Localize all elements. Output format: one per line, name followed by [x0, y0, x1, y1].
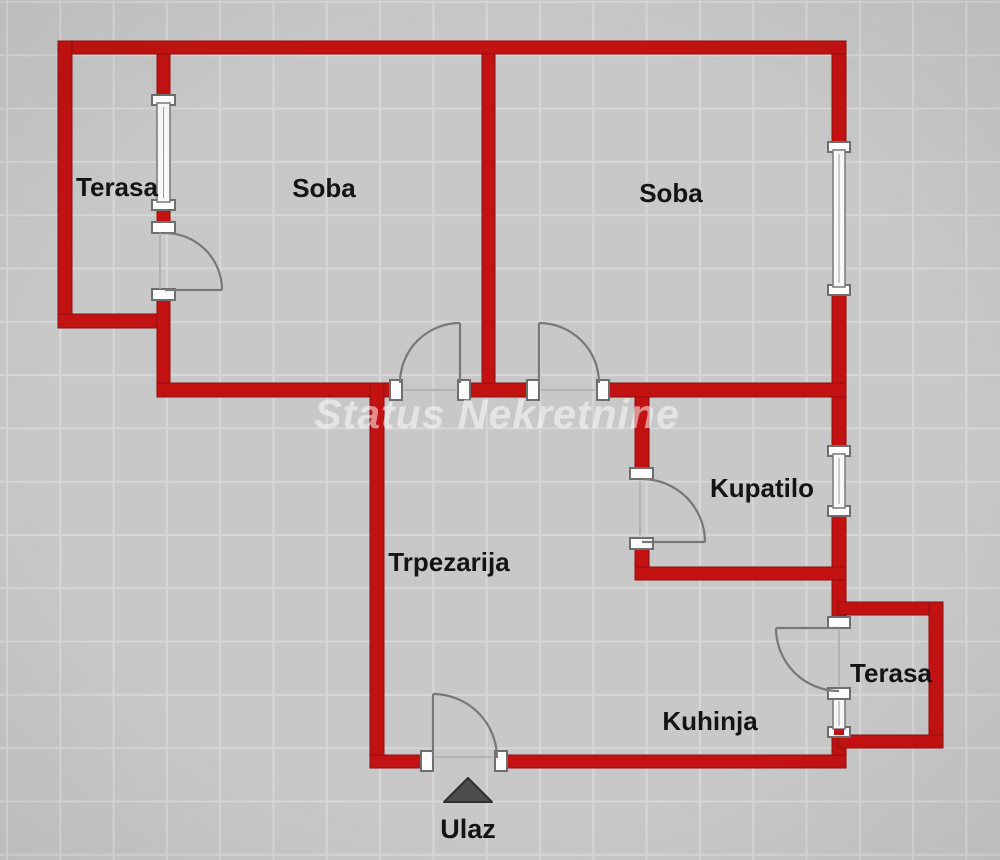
- window-kuhinja-mark-bottom: [834, 729, 844, 735]
- wall-bottom-b: [505, 755, 846, 768]
- wall-trpezarija-left: [370, 383, 384, 768]
- room-label-entrance: Ulaz: [440, 814, 496, 844]
- wall-terasa-partition-c: [157, 291, 170, 397]
- door-jamb-terasa-top-a: [152, 222, 175, 233]
- room-label-soba-left: Soba: [292, 173, 356, 203]
- wall-bottom-a: [370, 755, 423, 768]
- wall-right-a: [832, 54, 846, 147]
- room-label-terasa-bottom: Terasa: [850, 658, 932, 688]
- door-jamb-entrance-a: [421, 751, 433, 771]
- door-jamb-kupatilo-a: [630, 468, 653, 479]
- wall-right-b: [832, 292, 846, 448]
- wall-terasa-top-left: [58, 41, 72, 328]
- room-label-kupatilo: Kupatilo: [710, 473, 814, 503]
- wall-terasa-top-bottom: [58, 314, 170, 328]
- room-label-trpezarija: Trpezarija: [388, 547, 510, 577]
- floor-plan-svg: Status Nekretnine Terasa Soba Soba Kupat…: [0, 0, 1000, 860]
- wall-terasa-bottom-top: [838, 602, 943, 615]
- floor-plan: Status Nekretnine Terasa Soba Soba Kupat…: [0, 0, 1000, 860]
- watermark-text: Status Nekretnine: [314, 391, 680, 437]
- room-label-kuhinja: Kuhinja: [662, 706, 758, 736]
- room-label-terasa-top: Terasa: [76, 172, 158, 202]
- wall-top: [58, 41, 846, 54]
- door-jamb-terasa-bottom-a: [828, 617, 850, 628]
- wall-soba-divider: [482, 54, 495, 397]
- room-label-soba-right: Soba: [639, 178, 703, 208]
- wall-terasa-bottom-bottom: [838, 735, 943, 748]
- wall-kupatilo-bottom: [635, 567, 846, 580]
- door-jamb-kupatilo-b: [630, 538, 653, 549]
